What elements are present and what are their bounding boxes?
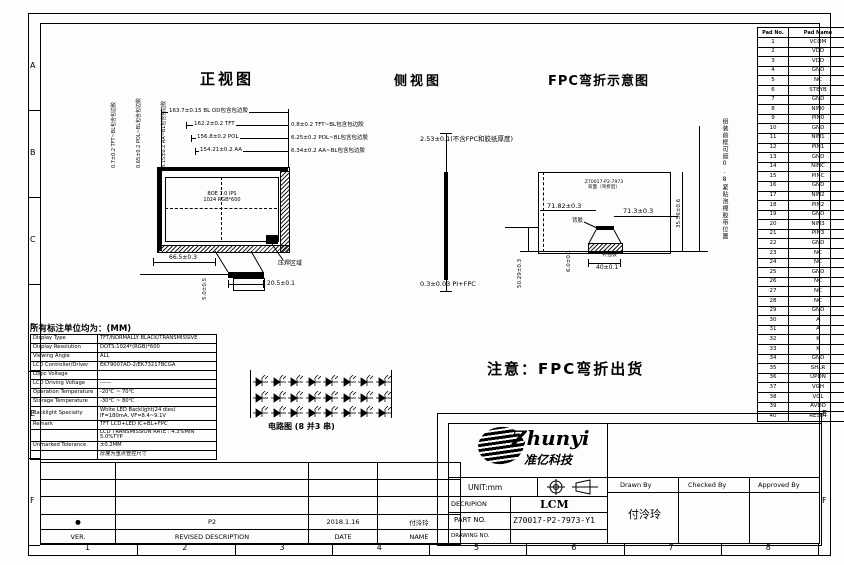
pin-row: 15PINC [758,172,844,182]
led-icon [358,403,373,422]
spec-table: Display TypeTFT/NORMALLY BLACK/TRANSMISS… [30,334,217,460]
line [215,258,216,266]
pin-cell: 30 [758,316,789,326]
line [153,258,154,266]
part-no-label: PART NO. [454,516,486,524]
line [228,280,229,288]
pin-cell: 16 [758,181,789,191]
pin-cell: PIN2 [789,201,844,211]
left-offset-dimension: 3.15±0.2 AA~BL包含包边胶 [162,101,168,168]
spec-row: LCD TRANSMISSION RATE : 4.3%MIN 5.0%TYP [31,430,217,442]
dim-fpc-drop: 5.0±0.5 [202,278,208,300]
pin-row: 27NC [758,287,844,297]
revision-row [41,480,461,497]
spec-label: Viewing Angle [31,353,98,362]
spec-row: Display TypeTFT/NORMALLY BLACK/TRANSMISS… [31,335,217,344]
pin-cell: 18 [758,201,789,211]
line [448,477,820,478]
engineering-drawing-sheet: 12345678ABCDEFEF 正视图 侧视图 FPC弯折示意图 163.7±… [0,0,844,565]
pin-row: 28NC [758,297,844,307]
dim-pi-fpc: 0.3±0.03 PI+FPC [420,281,476,288]
pin-row: 16GND [758,181,844,191]
pin-cell: 2 [758,47,789,57]
spec-row: Display ResolutionDOTS:1024*(RGB)*600 [31,344,217,353]
pin-cell: VGH [789,383,844,393]
zone-number-bottom: 1 [85,544,90,553]
revision-row [41,463,461,480]
pin-table-grid: Pad No.Pad Name1VCOM2VDD3VDD4GND5NC6STBY… [757,27,844,422]
drawing-no-label: DRAWING NO. [451,533,489,539]
spec-row: Storage Temperature-30℃ ~ 80℃ [31,398,217,407]
line [540,210,596,211]
pin-cell: 38 [758,392,789,402]
unit-label: UNIT:mm [468,483,502,492]
line [250,370,251,418]
panel-right-hatch [280,171,290,253]
dim-height-left: 50.29±0.3 [517,259,523,288]
panel-center-label: BOE 7.0 IPS1024 RGB*600 [198,192,246,203]
pin-cell: VDD [789,47,844,57]
pin-cell: 22 [758,239,789,249]
line [528,227,529,252]
spec-value: -20℃ ~ 70℃ [98,389,217,398]
zone-tick [28,197,40,198]
spec-row: Operation Temperature-20℃ ~ 70℃ [31,389,217,398]
line [448,512,607,513]
spec-row: LCD Controller/DriverEK79007AD-2/EK73217… [31,362,217,371]
pin-row: 5NC [758,76,844,86]
pin-cell: 8 [758,105,789,115]
spec-value [98,371,217,380]
zone-letter-left: C [30,236,36,245]
pin-cell: 9 [758,114,789,124]
pin-cell: NC [789,76,844,86]
pin-cell: 35 [758,364,789,374]
pin-cell: A [789,325,844,335]
line [440,133,452,134]
spec-value: ------ [98,380,217,389]
dim-tick [191,135,192,142]
pin-cell: VGL [789,392,844,402]
spec-row: Unmarked Tolerance±0.2MM [31,441,217,450]
part-no-value: Z70017-P2-7973-Y1 [513,516,595,525]
pin-row: 14NINC [758,162,844,172]
pin-cell: PINC [789,172,844,182]
spec-label: Operation Temperature [31,389,98,398]
pin-cell: GND [789,124,844,134]
company-logo-text: Zhunyi [512,426,589,450]
pin-row: 39AVDD [758,402,844,412]
pin-cell: NC [789,258,844,268]
revision-cell [41,480,116,497]
dim-gap: 6.0±0.1 [566,250,572,272]
pin-cell: SHLR [789,364,844,374]
pin-cell: NIN0 [789,105,844,115]
revision-header-cell: DATE [309,530,378,545]
pin-cell: 15 [758,172,789,182]
approved-by-label: Approved By [758,481,800,489]
line [520,251,708,252]
spec-value: TFT/NORMALLY BLACK/TRANSMISSIVE [98,335,217,344]
pin-row: 18PIN2 [758,201,844,211]
pin-cell: 13 [758,153,789,163]
side-view-title: 侧视图 [394,70,442,89]
line [288,109,289,168]
line [165,208,277,209]
pin-cell: STBYB [789,85,844,95]
zone-tick [28,284,40,285]
line [440,291,452,292]
spec-label: Backlight Specialty [31,407,98,421]
pin-cell: PIN0 [789,114,844,124]
pin-row: 33K [758,345,844,355]
zone-number-bottom: 2 [182,544,187,553]
pin-row: 1VCOM [758,38,844,48]
led-icon [271,403,286,422]
pin-cell: 29 [758,306,789,316]
line [263,280,264,288]
fpc-side-note: 组装前框可遮0.8紧贴泡棉胶带位置 [720,118,729,252]
spec-value: TFT LCD+LED IC+BL+FPC [98,421,217,430]
line [510,496,511,544]
left-offset-dimension: 0.7±0.2 TFT~BL包含包边胶 [112,102,118,168]
width-dimension: 162.2±0.2 TFT [193,121,236,127]
adhesive-label: 背胶 [572,218,583,224]
spec-label: Storage Temperature [31,398,98,407]
revision-header-row: VER.REVISED DESCRIPTIONDATENAME [41,530,461,545]
pin-cell: UPDN [789,373,844,383]
pin-row: 26NC [758,277,844,287]
pin-cell: 28 [758,297,789,307]
pin-row: 32K [758,335,844,345]
pin-table: Pad No.Pad Name1VCOM2VDD3VDD4GND5NC6STBY… [757,27,844,422]
pin-row: 35SHLR [758,364,844,374]
line [157,167,288,171]
pin-cell: 32 [758,335,789,345]
spec-row: Viewing AngleALL [31,353,217,362]
pin-cell: 24 [758,258,789,268]
pin-cell: 31 [758,325,789,335]
pin-cell: GND [789,354,844,364]
zone-number-bottom: 4 [377,544,382,553]
pin-cell: VCOM [789,38,844,48]
spec-value: EK79007AD-2/EK73217BCGA [98,362,217,371]
line [228,284,264,285]
pin-table-header: Pad No. [758,28,789,38]
spec-label: Remark [31,421,98,430]
spec-label: Unmarked Tolerance [31,441,98,450]
pin-cell: K [789,335,844,345]
spec-label: Display Type [31,335,98,344]
line [682,172,683,252]
pin-row: 25GND [758,268,844,278]
width-dimension: 156.8±0.2 POL [196,134,240,140]
line [614,216,678,217]
units-note: 所有标注单位均为：(MM) [30,322,131,334]
pin-cell: 12 [758,143,789,153]
pin-cell: 27 [758,287,789,297]
pin-cell: GND [789,268,844,278]
third-angle-projection-icon [546,479,602,495]
pin-row: 11NIN1 [758,133,844,143]
pin-cell: 39 [758,402,789,412]
checked-by-label: Checked By [688,481,726,489]
pin-cell: NC [789,297,844,307]
pin-cell: K [789,345,844,355]
pin-cell: GND [789,66,844,76]
pin-cell: 7 [758,95,789,105]
drawn-by-signature: 付泠玲 [628,506,661,522]
right-offset-dimension: 0.8±0.2 TFT~BL包含包边胶 [291,122,364,128]
led-icon [306,403,321,422]
bonding-area-label: 压焊区域 [278,261,302,268]
revision-cell [309,480,378,497]
pin-row: 3VDD [758,57,844,67]
pin-cell: 10 [758,124,789,134]
zone-tick [137,544,138,555]
pin-cell: 11 [758,133,789,143]
pin-row: 21PIN3 [758,229,844,239]
panel-bottom-hatch [158,245,290,253]
pin-cell: GND [789,306,844,316]
pin-cell: 25 [758,268,789,278]
line [749,477,750,544]
pin-row: 38VGL [758,392,844,402]
pin-cell: 20 [758,220,789,230]
line [448,529,607,530]
pin-cell: 6 [758,85,789,95]
pin-cell: 4 [758,66,789,76]
pin-row: 30A [758,316,844,326]
pin-row: 34GND [758,354,844,364]
led-icon [376,403,391,422]
pin-cell: GND [789,181,844,191]
line [607,423,608,544]
front-view-title: 正视图 [200,68,254,89]
pin-table-header: Pad Name [789,28,844,38]
revision-cell: 2018.1.16 [309,515,378,530]
spec-row: 厚度为重点管控尺寸 [31,450,217,459]
spec-row: Backlight SpecialtyWhite LED Backlight(2… [31,407,217,421]
pin-cell: GND [789,239,844,249]
pin-cell: VDD [789,57,844,67]
pin-cell: 21 [758,229,789,239]
zone-tick [235,544,236,555]
pin-row: 2VDD [758,47,844,57]
line [699,126,700,252]
pin-row: 13GND [758,153,844,163]
line [678,477,679,544]
pin-row: 17NIN2 [758,191,844,201]
pin-cell: 17 [758,191,789,201]
revision-cell [309,497,378,515]
description-value: LCM [540,498,569,511]
spec-value: White LED Backlight(24 dies) IF=180mA, V… [98,407,217,421]
spec-label: LCD Controller/Driver [31,362,98,371]
line [161,109,162,167]
dim-fpc-width: 20.5±0.1 [267,281,295,288]
shipping-note: 注意：FPC弯折出货 [487,358,644,379]
pin-row: 31A [758,325,844,335]
pin-cell: GND [789,95,844,105]
pin-cell: 1 [758,38,789,48]
spec-label [31,450,98,459]
pin-row: 12PIN1 [758,143,844,153]
line [543,172,544,252]
line [391,370,392,418]
pin-row: 10GND [758,124,844,134]
company-logo-cn: 准亿科技 [524,451,572,468]
pin-cell: NIN3 [789,220,844,230]
zone-tick [28,545,40,546]
line [537,477,538,496]
pin-cell: GND [789,210,844,220]
pin-cell: 23 [758,249,789,259]
line [153,262,215,263]
dim-tick [186,122,187,129]
zone-letter-left: F [30,497,35,506]
left-offset-dimension: 0.65±0.2 POL~BL包含包边胶 [137,98,143,168]
pin-row: 8NIN0 [758,105,844,115]
pin-row: 36UPDN [758,373,844,383]
pin-cell: 26 [758,277,789,287]
revision-row [41,497,461,515]
fpc-back-label: Z70017-P2-7973背面（弯折后） [568,180,640,190]
pin-cell: NC [789,277,844,287]
circuit-caption: 电路图 (8 并3 串) [268,423,335,432]
spec-label: LCD Driving Voltage [31,380,98,389]
pin-cell: 37 [758,383,789,393]
revision-cell: P2 [116,515,309,530]
pin-cell: GND [789,153,844,163]
pin-cell: NC [789,249,844,259]
stiffener-label: 补强板 [602,253,617,259]
zone-letter-right: F [822,497,827,506]
pin-cell: PIN1 [789,143,844,153]
revision-table: ●P22018.1.16付泠玲VER.REVISED DESCRIPTIONDA… [40,462,461,545]
pin-cell: 3 [758,57,789,67]
pin-row: 9PIN0 [758,114,844,124]
pin-cell: NIN1 [789,133,844,143]
right-offset-dimension: 6.25±0.2 POL~BL包含包边胶 [291,135,368,141]
spec-value: ALL [98,353,217,362]
led-icon [323,403,338,422]
pin-row: 23NC [758,249,844,259]
active-area-outline [165,177,279,242]
pin-row: 4GND [758,66,844,76]
spec-table-grid: Display TypeTFT/NORMALLY BLACK/TRANSMISS… [30,334,217,460]
line [157,167,162,251]
led-icon [341,403,356,422]
width-dimension: 163.7±0.15 BL OD包含包边胶 [168,108,249,114]
pin-cell: NC [789,287,844,297]
pin-row: 6STBYB [758,85,844,95]
revision-grid: ●P22018.1.16付泠玲VER.REVISED DESCRIPTIONDA… [40,462,461,545]
revision-row: ●P22018.1.16付泠玲 [41,515,461,530]
side-view-glass-stack [444,172,448,280]
zone-letter-left: A [30,62,35,71]
dim-tick [195,148,196,155]
dim-fpc-left: 66.5±0.3 [168,255,198,262]
spec-value: 厚度为重点管控尺寸 [98,450,217,459]
description-label: DECRIPION [451,500,487,508]
pin-cell: NINC [789,162,844,172]
revision-header-cell: VER. [41,530,116,545]
dim-thickness: 2.53±0.1(不含FPC和胶纸厚度) [420,136,513,143]
pin-cell: 34 [758,354,789,364]
revision-cell [116,463,309,480]
spec-value: ±0.2MM [98,441,217,450]
pin-cell: 14 [758,162,789,172]
spec-row: Logic Voltage [31,371,217,380]
pin-cell: NIN2 [789,191,844,201]
pin-row: 20NIN3 [758,220,844,230]
pin-cell: A [789,316,844,326]
revision-cell: ● [41,515,116,530]
pin-row: 37VGH [758,383,844,393]
pin-cell: 5 [758,76,789,86]
revision-header-cell: REVISED DESCRIPTION [116,530,309,545]
pin-cell: 19 [758,210,789,220]
revision-cell [41,463,116,480]
spec-label: Display Resolution [31,344,98,353]
dim-fpc-left-span: 71.82±0.3 [546,203,582,210]
spec-value: DOTS:1024*(RGB)*600 [98,344,217,353]
dim-connector-width: 40±0.1 [596,265,618,272]
dim-fpc-right-span: 71.3±0.3 [622,208,654,215]
right-offset-dimension: 6.34±0.2 AA~BL包含包边胶 [291,148,365,154]
led-icon [288,403,303,422]
pin-row: 22GND [758,239,844,249]
spec-value: LCD TRANSMISSION RATE : 4.3%MIN 5.0%TYP [98,430,217,442]
bonding-area-mark [266,235,278,244]
pin-row: 24NC [758,258,844,268]
line [588,259,589,267]
zone-tick [332,544,333,555]
pin-cell: 36 [758,373,789,383]
line [620,259,621,267]
spec-label [31,430,98,442]
spec-row: LCD Driving Voltage------ [31,380,217,389]
pin-cell: 33 [758,345,789,355]
width-dimension: 154.21±0.2 AA [199,147,243,153]
fpc-view-title: FPC弯折示意图 [548,70,649,89]
pin-row: 7GND [758,95,844,105]
revision-cell [116,497,309,515]
revision-cell [116,480,309,497]
led-icon [253,403,268,422]
line [140,274,228,275]
spec-row: RemarkTFT LCD+LED IC+BL+FPC [31,421,217,430]
line [505,227,538,228]
spec-value: -30℃ ~ 80℃ [98,398,217,407]
revision-cell [309,463,378,480]
revision-cell [41,497,116,515]
pin-cell: PIN3 [789,229,844,239]
zone-tick [28,110,40,111]
fpc-bend-connector [596,226,614,230]
pin-row: 19GND [758,210,844,220]
zone-number-bottom: 3 [280,544,285,553]
pin-row: 29GND [758,306,844,316]
pin-cell: AVDD [789,402,844,412]
line [448,496,607,497]
zone-tick [429,544,430,555]
zone-letter-left: B [30,149,36,158]
spec-label: Logic Voltage [31,371,98,380]
line [607,492,820,493]
drawn-by-label: Drawn By [620,481,651,489]
